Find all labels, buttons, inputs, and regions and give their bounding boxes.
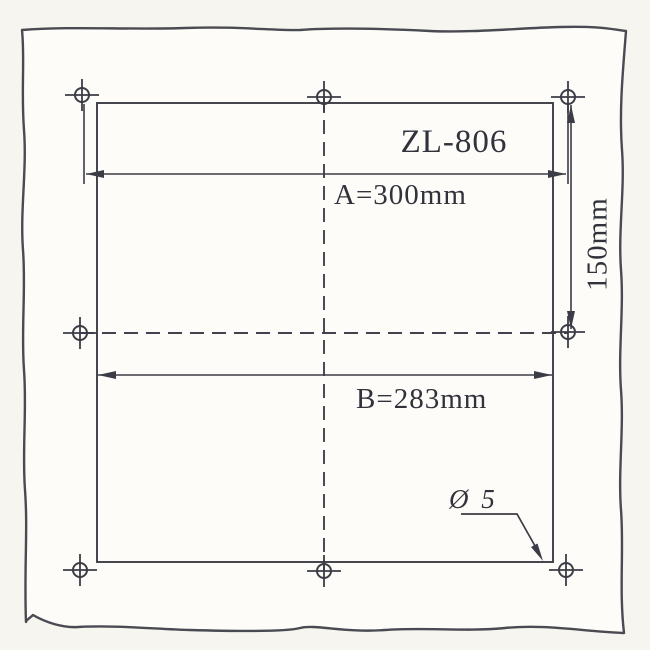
dim-a-label: A=300mm: [334, 181, 467, 210]
drawing-canvas: [0, 0, 650, 650]
hole-diameter-label: Ø 5: [449, 486, 498, 513]
dim-height-label: 150mm: [584, 197, 613, 291]
model-label: ZL-806: [393, 126, 515, 159]
dim-b-label: B=283mm: [356, 385, 487, 414]
drilling-template-drawing: ZL-806 A=300mm B=283mm 150mm Ø 5: [0, 0, 650, 650]
